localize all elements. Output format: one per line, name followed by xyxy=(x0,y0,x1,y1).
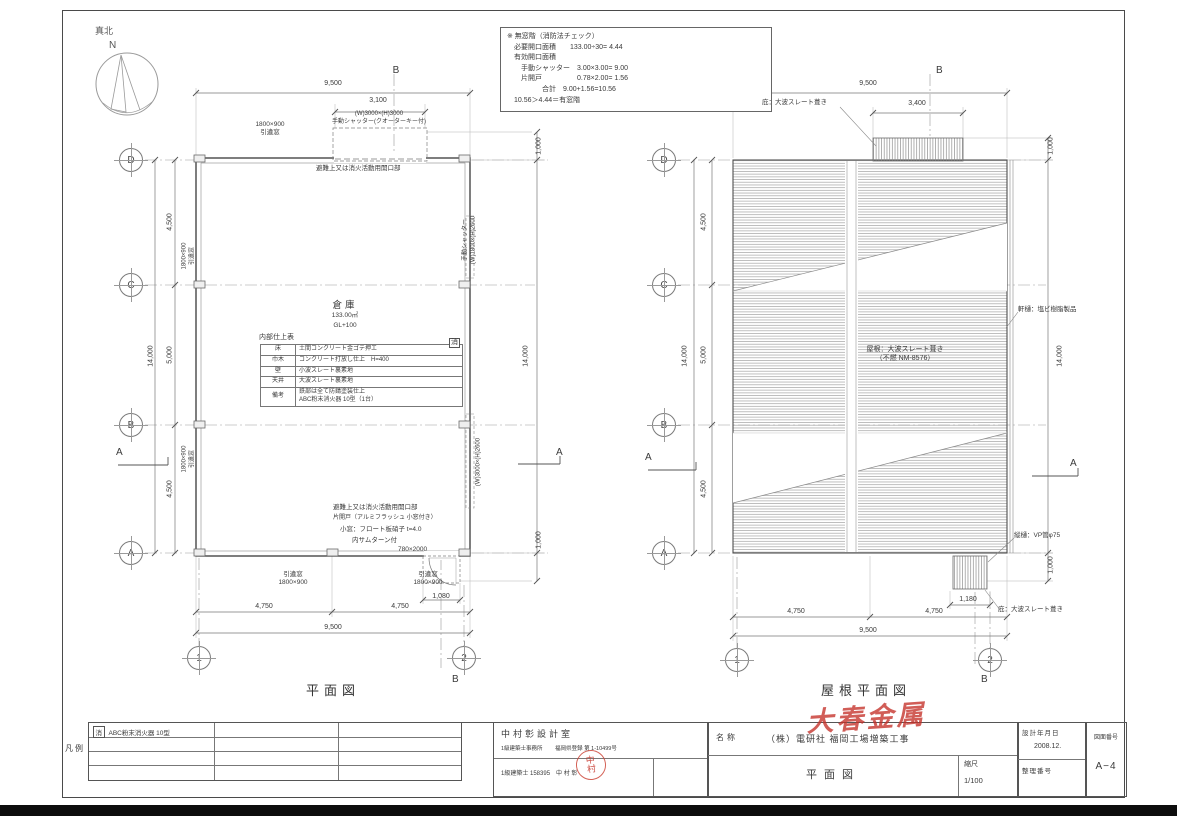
office-type: 1級建築士事務所 xyxy=(501,746,543,752)
note-line-0: ※ 無窓階（消防法チェック） xyxy=(507,32,765,43)
note-line-3: 手動シャッター 3.00×3.00= 9.00 xyxy=(507,64,765,75)
compass-icon xyxy=(96,53,158,115)
annotation-label: 内サムターン付 xyxy=(352,537,397,545)
dim-label: 5,000 xyxy=(167,346,176,364)
sheet-drawing-title: 平面図 xyxy=(708,755,958,796)
dim-label: 5,000 xyxy=(701,346,710,364)
annotation-label: 1800×900 引違窓 xyxy=(255,121,284,137)
scale-label: 縮尺 xyxy=(964,759,978,769)
annotation-label: 内部仕上表 xyxy=(259,334,294,343)
dim-label: 4,500 xyxy=(167,480,176,498)
grid-bubble-D: D xyxy=(652,148,676,172)
finish-cell: 大波スレート裏素地 xyxy=(296,377,463,388)
finish-cell: 鉄部は全て防錆塗装仕上 ABC粉末消火器 10型（1台） xyxy=(296,388,463,407)
room-level: GL+100 xyxy=(299,321,391,331)
dim-label: 1,000 xyxy=(1048,556,1057,574)
annotation-label: B xyxy=(452,674,459,687)
grid-bubble-C: C xyxy=(119,273,143,297)
floor-plan-caption: 平面図 xyxy=(306,680,360,699)
annotation-label: B xyxy=(936,65,943,78)
dim-label: 14,000 xyxy=(682,345,691,366)
seiri-label: 整理番号 xyxy=(1022,765,1052,775)
annotation-label: 小窓：フロート板硝子 t=4.0 xyxy=(340,526,421,534)
annotation-label: 屋根：大波スレート葺き （不燃 NM-8576） xyxy=(867,346,944,364)
title-block-divider xyxy=(460,722,493,723)
dim-label: 9,500 xyxy=(859,627,877,636)
dim-label: 4,500 xyxy=(701,480,710,498)
annotation-label: 引違窓 1800×900 xyxy=(413,571,442,587)
finish-table-row: 壁小波スレート裏素地 xyxy=(261,366,463,377)
name-label: 名称 xyxy=(716,732,738,743)
annotation-label: 庇：大波スレート葺き xyxy=(762,99,827,107)
legend-table: 消ABC粉末消火器 10型 xyxy=(88,722,462,781)
annotation-label: 1800×900 引違窓 xyxy=(182,243,197,270)
grid-bubble-A: A xyxy=(119,541,143,565)
room-label: 倉庫 133.00㎡ GL+100 xyxy=(299,297,391,331)
date-block: 設計年月日 2008.12. 整理番号 xyxy=(1017,722,1087,797)
annotation-label: A xyxy=(645,452,652,465)
scan-edge xyxy=(0,805,1177,816)
grid-bubble-A: A xyxy=(652,541,676,565)
dim-label: 9,500 xyxy=(324,624,342,633)
note-line-6: 10.56＞4.44＝有窓階 xyxy=(507,96,765,107)
dim-label: 14,000 xyxy=(1057,345,1066,366)
extinguisher-symbol: 消 xyxy=(93,726,105,738)
legend-item-text: ABC粉末消火器 10型 xyxy=(109,730,170,737)
note-line-1: 必要開口面積 133.00÷30= 4.44 xyxy=(507,43,765,54)
annotation-label: A xyxy=(556,447,563,460)
date-value: 2008.12. xyxy=(1034,743,1061,750)
annotation-label: 庇：大波スレート葺き xyxy=(998,606,1063,614)
finish-cell: 小波スレート裏素地 xyxy=(296,366,463,377)
note-line-2: 有効開口面積 xyxy=(507,53,765,64)
dim-label: 1,180 xyxy=(959,596,977,605)
room-area: 133.00㎡ xyxy=(299,311,391,321)
compass-n-label: N xyxy=(109,40,116,51)
grid-bubble-D: D xyxy=(119,148,143,172)
sheet-number-block: 図面番号 A−4 xyxy=(1085,722,1127,797)
annotation-label: A xyxy=(116,447,123,460)
dim-label: 1,080 xyxy=(432,593,450,602)
grid-bubble-B: B xyxy=(652,413,676,437)
drawing-sheet: 真北 N ※ 無窓階（消防法チェック） 必要開口面積 133.00÷30= 4.… xyxy=(0,0,1177,816)
annotation-label: B xyxy=(981,674,988,687)
annotation-label: 1800×900 引違窓 xyxy=(182,446,197,473)
dim-label: (W)3000×(H)2600 xyxy=(475,438,483,486)
room-name: 倉庫 xyxy=(299,297,391,311)
grid-bubble-1: 1 xyxy=(187,646,211,670)
dim-label: 4,750 xyxy=(255,603,273,612)
dim-label: 9,500 xyxy=(324,80,342,89)
dim-label: 1,000 xyxy=(536,137,545,155)
dim-label: 3,100 xyxy=(369,97,387,106)
finish-cell: 備考 xyxy=(261,388,296,407)
finish-table: 床土間コンクリート金ゴテ押エ巾木コンクリート打放し仕上 H=400壁小波スレート… xyxy=(260,344,463,407)
dim-label: 4,500 xyxy=(167,213,176,231)
finish-cell: 壁 xyxy=(261,366,296,377)
finish-cell: 巾木 xyxy=(261,355,296,366)
dim-label: 4,750 xyxy=(391,603,409,612)
dim-label: 14,000 xyxy=(523,345,532,366)
annotation-label: 軒樋：塩ビ樹脂製品 xyxy=(1018,306,1077,314)
sheet-number-label: 図面番号 xyxy=(1086,732,1126,741)
annotation-label: 消 xyxy=(449,338,460,348)
dim-label: 4,750 xyxy=(925,608,943,617)
fire-code-note-box: ※ 無窓階（消防法チェック） 必要開口面積 133.00÷30= 4.44 有効… xyxy=(500,27,772,112)
architect-name: 1級建築士 158395 中 村 彰 xyxy=(501,768,577,777)
office-name: 中村彰設計室 xyxy=(501,727,573,740)
annotation-label: 引違窓 1800×900 xyxy=(278,571,307,587)
dim-label: 4,750 xyxy=(787,608,805,617)
grid-bubble-B: B xyxy=(119,413,143,437)
finish-table-row: 床土間コンクリート金ゴテ押エ xyxy=(261,345,463,356)
finish-table-row: 天井大波スレート裏素地 xyxy=(261,377,463,388)
finish-cell: コンクリート打放し仕上 H=400 xyxy=(296,355,463,366)
dim-label: 1,000 xyxy=(1048,137,1057,155)
dim-label: 14,000 xyxy=(148,345,157,366)
finish-cell: 土間コンクリート金ゴテ押エ xyxy=(296,345,463,356)
dim-label: 9,500 xyxy=(859,80,877,89)
annotation-label: 片開戸（アルミフラッシュ 小窓付き） xyxy=(333,515,437,523)
annotation-label: 縦樋：VP管φ75 xyxy=(1014,532,1060,540)
scale-value: 1/100 xyxy=(964,776,983,785)
dim-label: 4,500 xyxy=(701,213,710,231)
finish-cell: 床 xyxy=(261,345,296,356)
annotation-label: 避難上又は消火活動用開口部 xyxy=(316,165,401,173)
date-label: 設計年月日 xyxy=(1022,727,1060,737)
dim-label: 3,400 xyxy=(908,100,926,109)
legend-label: 凡例 xyxy=(65,743,85,754)
note-line-4: 片開戸 0.78×2.00= 1.56 xyxy=(507,74,765,85)
dim-label: 780×2000 xyxy=(398,546,427,554)
finish-cell: 天井 xyxy=(261,377,296,388)
finish-table-row: 巾木コンクリート打放し仕上 H=400 xyxy=(261,355,463,366)
annotation-label: 手動シャッター (W)1800×(H)2600 xyxy=(463,216,478,264)
sheet-number-value: A−4 xyxy=(1086,761,1126,772)
office-registration: 1級建築士事務所 福岡県登録 第 1-10499号 xyxy=(501,744,617,752)
legend-entry: 消ABC粉末消火器 10型 xyxy=(93,726,170,738)
grid-bubble-C: C xyxy=(652,273,676,297)
note-line-5: 合計 9.00+1.56=10.56 xyxy=(507,85,765,96)
annotation-label: A xyxy=(1070,458,1077,471)
annotation-label: 避難上又は消火活動用開口部 xyxy=(333,504,418,512)
grid-bubble-2: 2 xyxy=(452,646,476,670)
compass-true-north-label: 真北 xyxy=(95,24,113,37)
finish-table-row: 備考鉄部は全て防錆塗装仕上 ABC粉末消火器 10型（1台） xyxy=(261,388,463,407)
dim-label: 1,000 xyxy=(536,531,545,549)
annotation-label: (W)3000×(H)3000 手動シャッター(クオーターキー付) xyxy=(332,111,426,126)
annotation-label: B xyxy=(393,65,400,78)
grid-bubble-2: 2 xyxy=(978,648,1002,672)
grid-bubble-1: 1 xyxy=(725,648,749,672)
roof-plan-graphics xyxy=(733,138,1013,589)
linework-svg xyxy=(0,0,1177,816)
